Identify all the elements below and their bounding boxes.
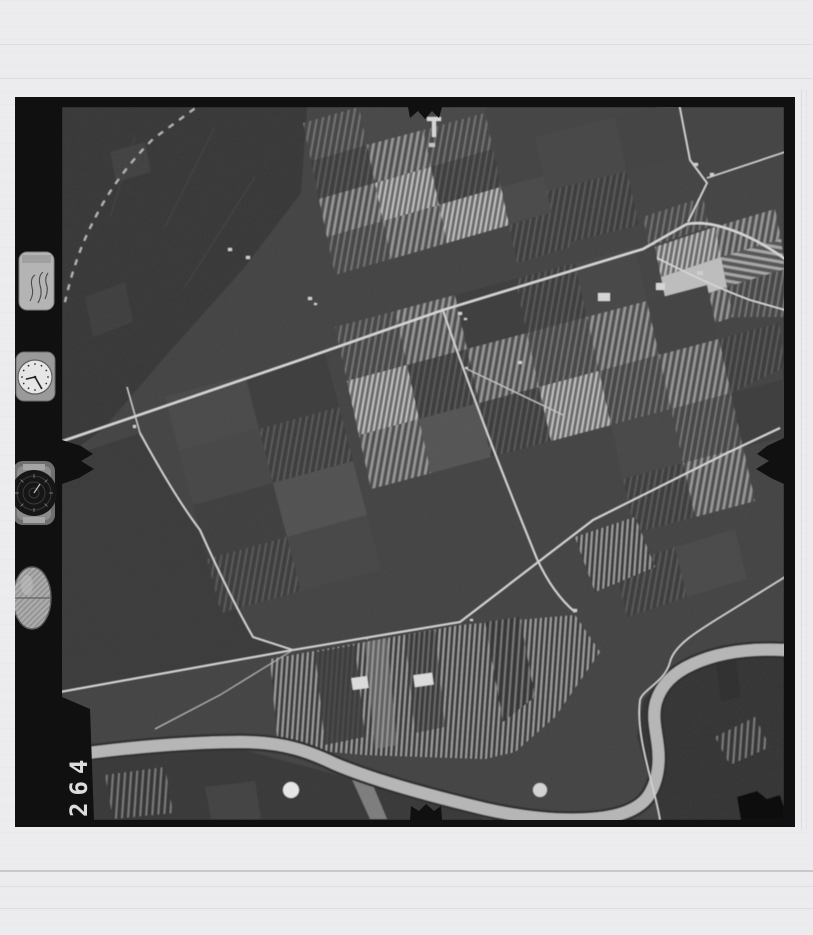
scan-background: 264: [0, 0, 813, 935]
altimeter-dial: [15, 461, 57, 525]
scan-artifact-line: [801, 90, 802, 830]
scan-artifact-line: [0, 908, 813, 909]
clock-dial: [16, 352, 55, 401]
aerial-photo-frame: 264: [15, 97, 795, 827]
terrain: [60, 98, 785, 820]
aerial-photograph: 264: [15, 97, 795, 827]
scan-artifact-line: [0, 870, 813, 872]
frame-number: 264: [65, 753, 93, 817]
data-plate: [19, 252, 54, 310]
scan-artifact-line: [806, 90, 807, 830]
scan-artifact-line: [0, 886, 813, 887]
scan-artifact-line: [0, 78, 813, 79]
scan-artifact-line: [0, 44, 813, 45]
bubble-level: [15, 567, 51, 629]
